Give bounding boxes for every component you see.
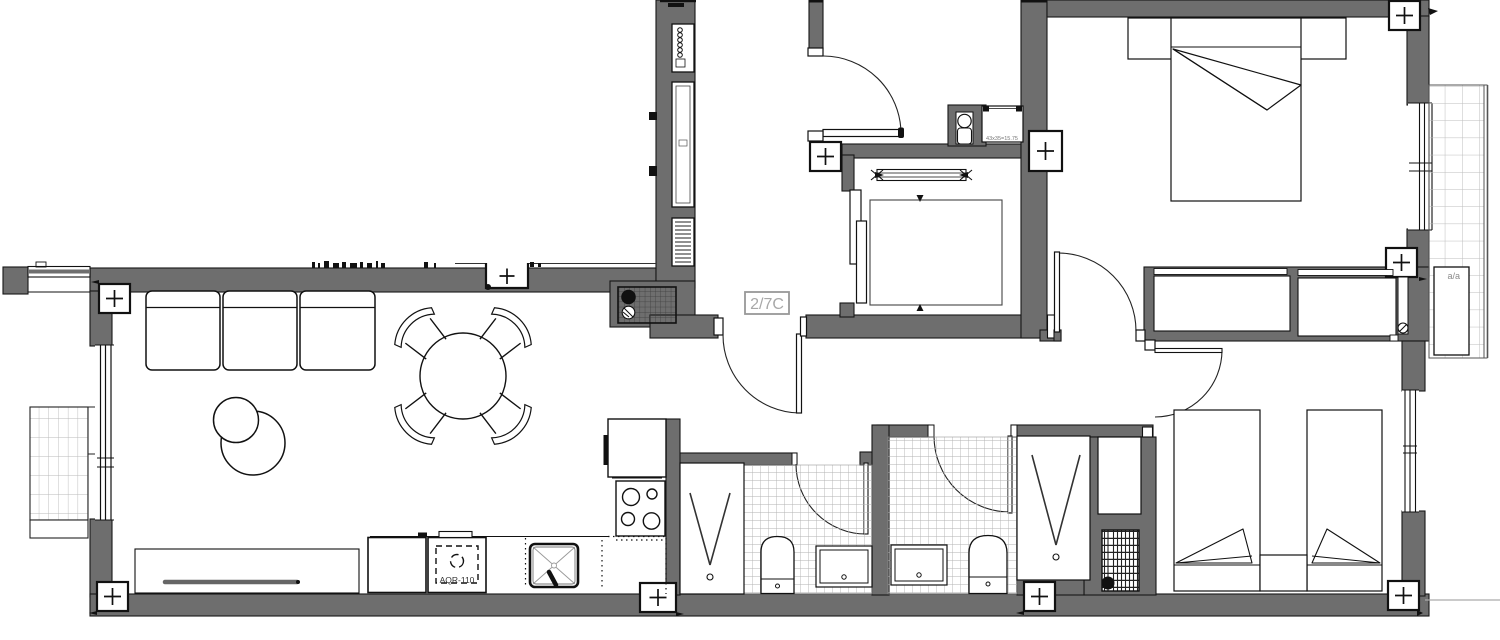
svg-text:AQR-110: AQR-110 <box>440 575 475 585</box>
svg-text:a/a: a/a <box>1447 271 1460 281</box>
svg-text:43x35=15.75: 43x35=15.75 <box>986 136 1018 142</box>
svg-text:2/7C: 2/7C <box>750 296 784 313</box>
